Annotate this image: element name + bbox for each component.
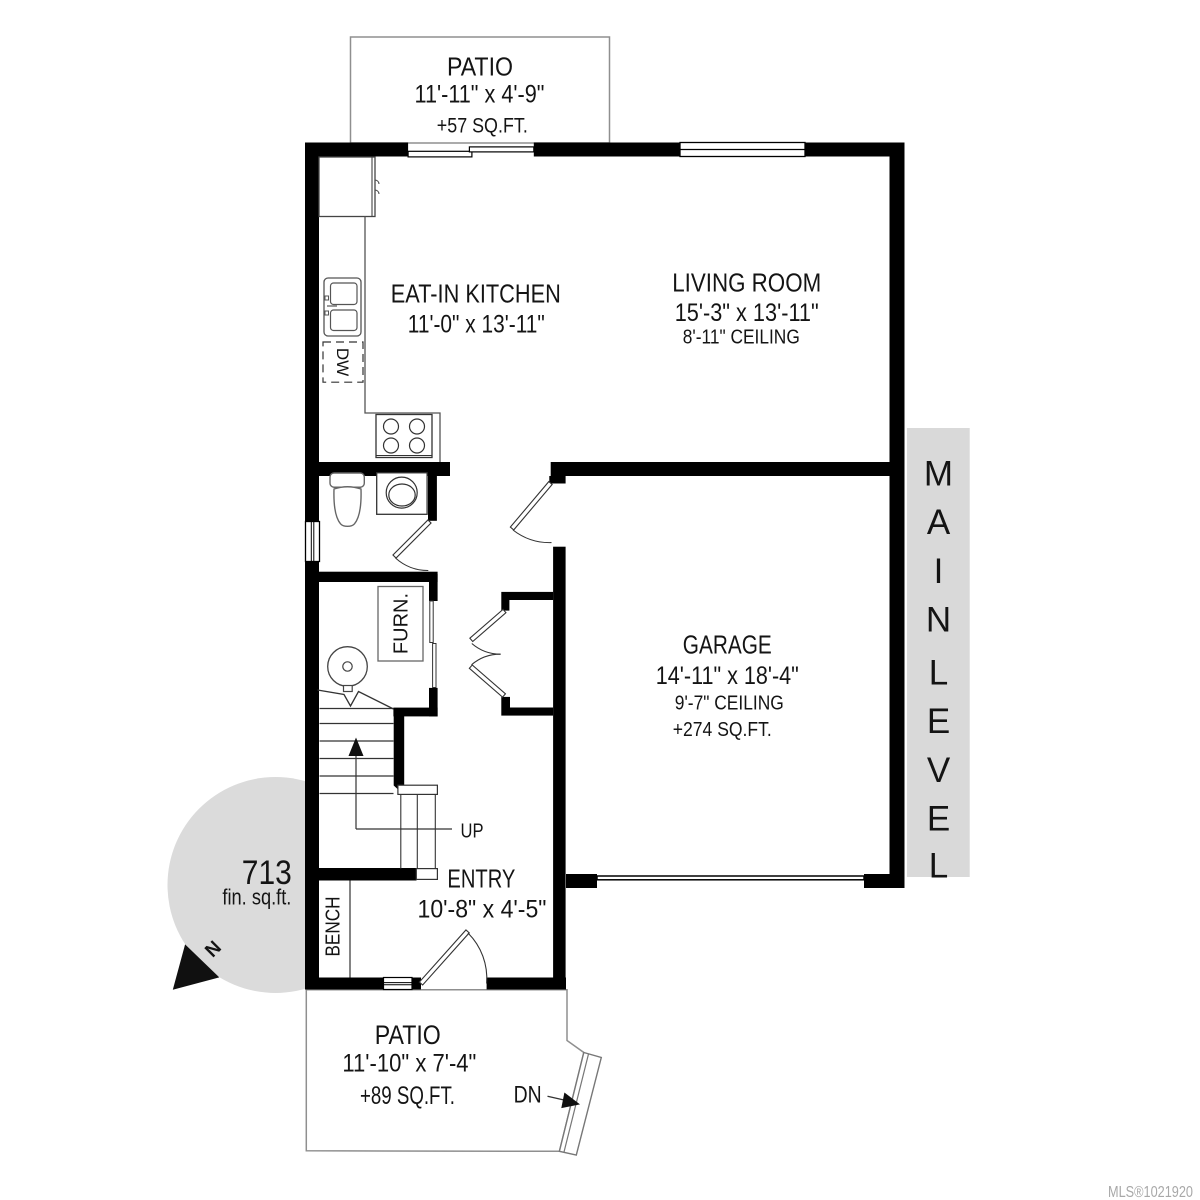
svg-text:BENCH: BENCH xyxy=(323,897,345,957)
svg-text:N: N xyxy=(926,601,951,640)
svg-text:11'-10" x 7'-4": 11'-10" x 7'-4" xyxy=(342,1049,476,1077)
svg-text:11'-11" x 4'-9": 11'-11" x 4'-9" xyxy=(415,80,545,108)
svg-text:PATIO: PATIO xyxy=(447,52,513,82)
svg-text:11'-0" x 13'-11": 11'-0" x 13'-11" xyxy=(408,311,545,339)
svg-text:E: E xyxy=(927,702,950,741)
svg-text:PATIO: PATIO xyxy=(375,1020,441,1050)
svg-text:14'-11" x 18'-4": 14'-11" x 18'-4" xyxy=(656,662,799,690)
svg-text:FURN.: FURN. xyxy=(391,593,413,654)
svg-text:9'-7" CEILING: 9'-7" CEILING xyxy=(675,692,784,714)
svg-text:I: I xyxy=(934,552,944,591)
svg-text:UP: UP xyxy=(461,821,484,843)
svg-text:LIVING ROOM: LIVING ROOM xyxy=(672,268,821,298)
svg-text:MLS®1021920: MLS®1021920 xyxy=(1108,1184,1193,1200)
svg-text:fin. sq.ft.: fin. sq.ft. xyxy=(222,885,291,910)
svg-text:EAT-IN KITCHEN: EAT-IN KITCHEN xyxy=(391,279,561,309)
svg-text:ENTRY: ENTRY xyxy=(447,864,515,894)
svg-text:V: V xyxy=(927,751,951,790)
svg-text:DW: DW xyxy=(333,348,352,376)
svg-text:+57 SQ.FT.: +57 SQ.FT. xyxy=(437,115,528,138)
svg-text:E: E xyxy=(927,800,950,839)
svg-text:+89 SQ.FT.: +89 SQ.FT. xyxy=(360,1082,455,1110)
svg-text:M: M xyxy=(924,455,953,494)
svg-text:L: L xyxy=(929,846,948,885)
svg-text:A: A xyxy=(927,503,951,542)
svg-text:DN: DN xyxy=(514,1082,542,1109)
svg-text:8'-11" CEILING: 8'-11" CEILING xyxy=(683,327,800,349)
svg-text:+274 SQ.FT.: +274 SQ.FT. xyxy=(673,719,772,741)
svg-text:GARAGE: GARAGE xyxy=(683,629,772,659)
svg-text:L: L xyxy=(929,654,948,693)
svg-text:15'-3" x 13'-11": 15'-3" x 13'-11" xyxy=(675,299,819,327)
svg-text:10'-8" x 4'-5": 10'-8" x 4'-5" xyxy=(418,896,547,924)
